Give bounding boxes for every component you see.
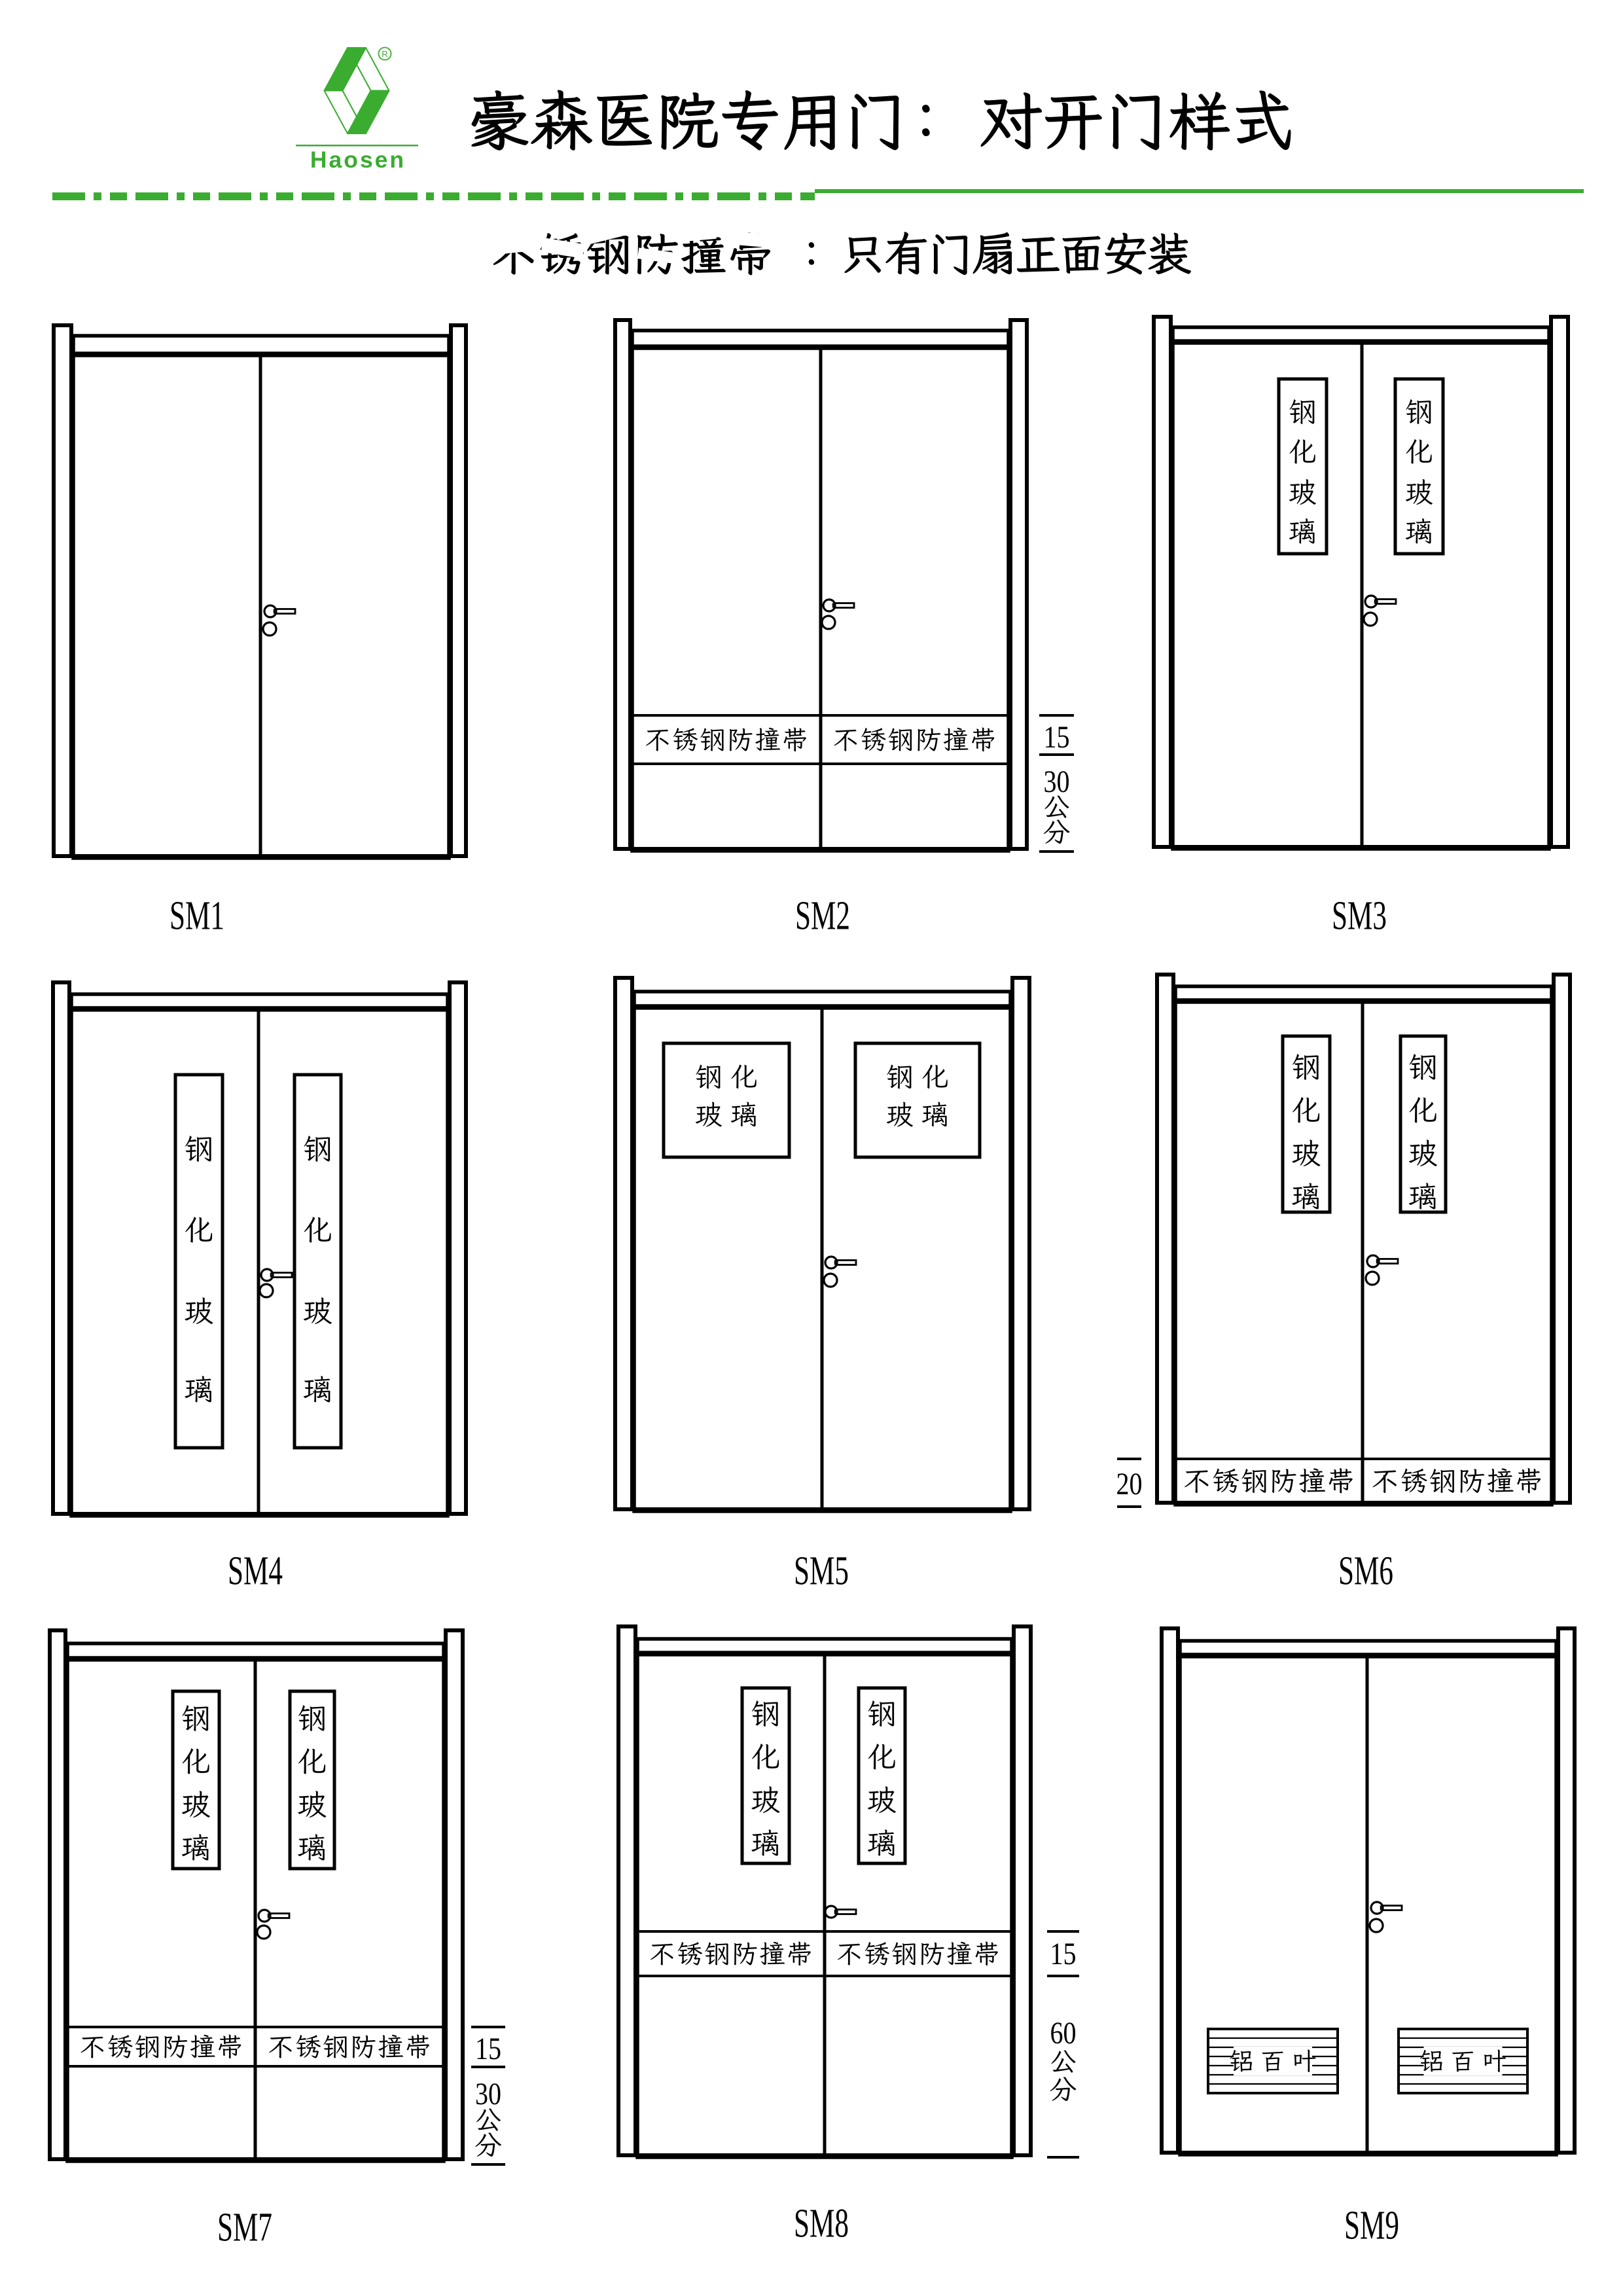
svg-text:SM4: SM4 xyxy=(228,1549,283,1594)
svg-text:20: 20 xyxy=(1116,1467,1143,1501)
svg-text:SM2: SM2 xyxy=(795,894,850,939)
svg-text:SM1: SM1 xyxy=(169,894,224,939)
svg-text:SM3: SM3 xyxy=(1332,894,1387,939)
svg-text:30: 30 xyxy=(475,2077,501,2111)
svg-text:30: 30 xyxy=(1044,764,1070,799)
svg-text:15: 15 xyxy=(1050,1937,1077,1971)
svg-text:SM9: SM9 xyxy=(1344,2204,1399,2248)
svg-text:SM6: SM6 xyxy=(1338,1549,1393,1594)
svg-text:60: 60 xyxy=(1050,2016,1077,2051)
svg-text:R: R xyxy=(382,49,387,59)
svg-text:15: 15 xyxy=(475,2032,501,2066)
svg-text:Haosen: Haosen xyxy=(310,147,406,173)
svg-text:SM8: SM8 xyxy=(794,2202,849,2246)
svg-text:SM5: SM5 xyxy=(794,1549,849,1594)
svg-text:SM7: SM7 xyxy=(217,2206,272,2250)
svg-text:15: 15 xyxy=(1044,720,1070,755)
